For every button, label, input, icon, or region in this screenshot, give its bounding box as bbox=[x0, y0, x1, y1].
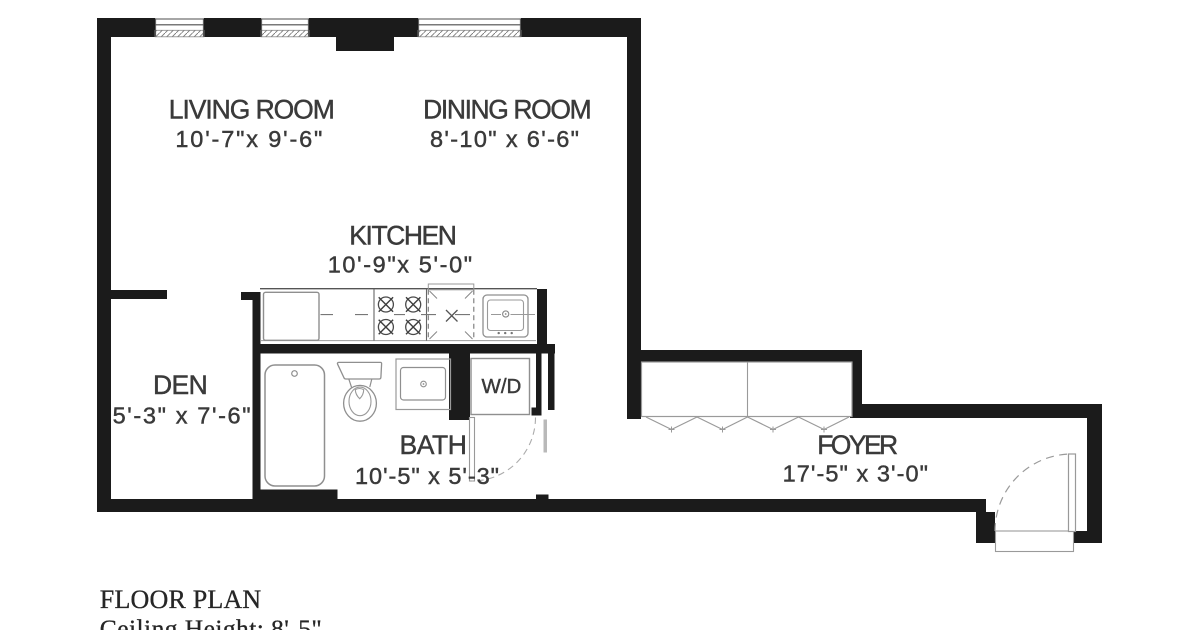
svg-text:LIVING ROOM: LIVING ROOM bbox=[169, 94, 335, 124]
svg-text:10'-7"x 9'-6": 10'-7"x 9'-6" bbox=[175, 126, 322, 152]
svg-text:10'-5" x 5'-3": 10'-5" x 5'-3" bbox=[355, 463, 499, 489]
svg-text:DINING ROOM: DINING ROOM bbox=[423, 94, 592, 124]
svg-text:BATH: BATH bbox=[399, 430, 467, 460]
svg-text:W/D: W/D bbox=[482, 375, 522, 398]
svg-text:10'-9"x 5'-0": 10'-9"x 5'-0" bbox=[328, 252, 472, 278]
svg-text:5'-3" x 7'-6": 5'-3" x 7'-6" bbox=[113, 402, 251, 428]
svg-text:Ceiling Height: 8'-5": Ceiling Height: 8'-5" bbox=[100, 614, 322, 630]
svg-text:DEN: DEN bbox=[153, 370, 208, 400]
svg-text:17'-5" x 3'-0": 17'-5" x 3'-0" bbox=[783, 461, 928, 487]
svg-text:FLOOR PLAN: FLOOR PLAN bbox=[100, 585, 262, 614]
svg-text:KITCHEN: KITCHEN bbox=[349, 221, 457, 251]
svg-text:FOYER: FOYER bbox=[817, 430, 898, 460]
